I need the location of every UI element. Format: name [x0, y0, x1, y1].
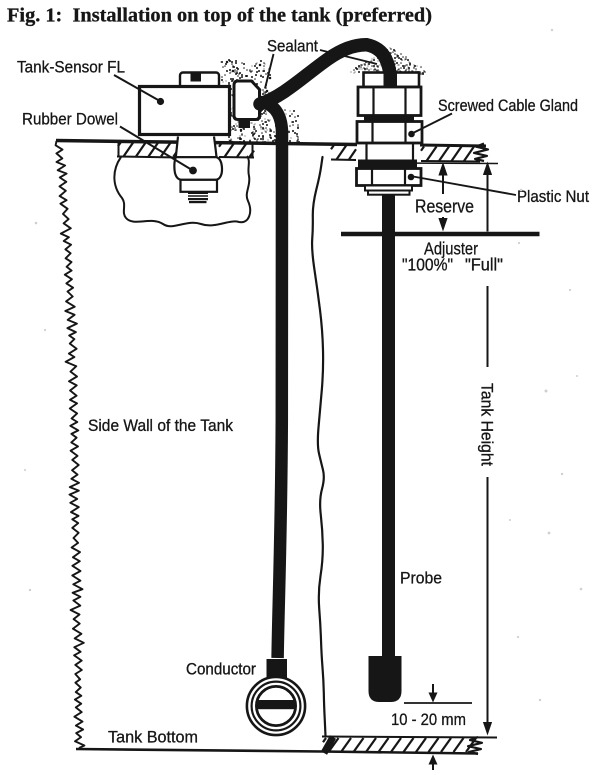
svg-text:Screwed Cable Gland: Screwed Cable Gland [438, 97, 578, 115]
svg-text:Probe: Probe [400, 569, 442, 588]
svg-text:Rubber Dowel: Rubber Dowel [22, 110, 118, 129]
svg-text:Tank Height: Tank Height [478, 383, 496, 466]
svg-text:Reserve: Reserve [415, 196, 474, 217]
svg-text:"100%": "100%" [402, 255, 453, 275]
svg-text:Side Wall of the Tank: Side Wall of the Tank [88, 417, 234, 435]
svg-text:Sealant: Sealant [267, 37, 318, 56]
svg-text:Conductor: Conductor [186, 661, 256, 679]
svg-text:Fig. 1: Installation on top o: Fig. 1: Installation on top of the tank … [7, 6, 432, 27]
svg-text:Tank Bottom: Tank Bottom [108, 728, 198, 747]
svg-text:10 - 20 mm: 10 - 20 mm [391, 710, 466, 729]
svg-text:Tank-Sensor FL: Tank-Sensor FL [17, 58, 125, 77]
svg-text:Plastic Nut: Plastic Nut [517, 187, 589, 206]
svg-text:"Full": "Full" [465, 255, 503, 275]
